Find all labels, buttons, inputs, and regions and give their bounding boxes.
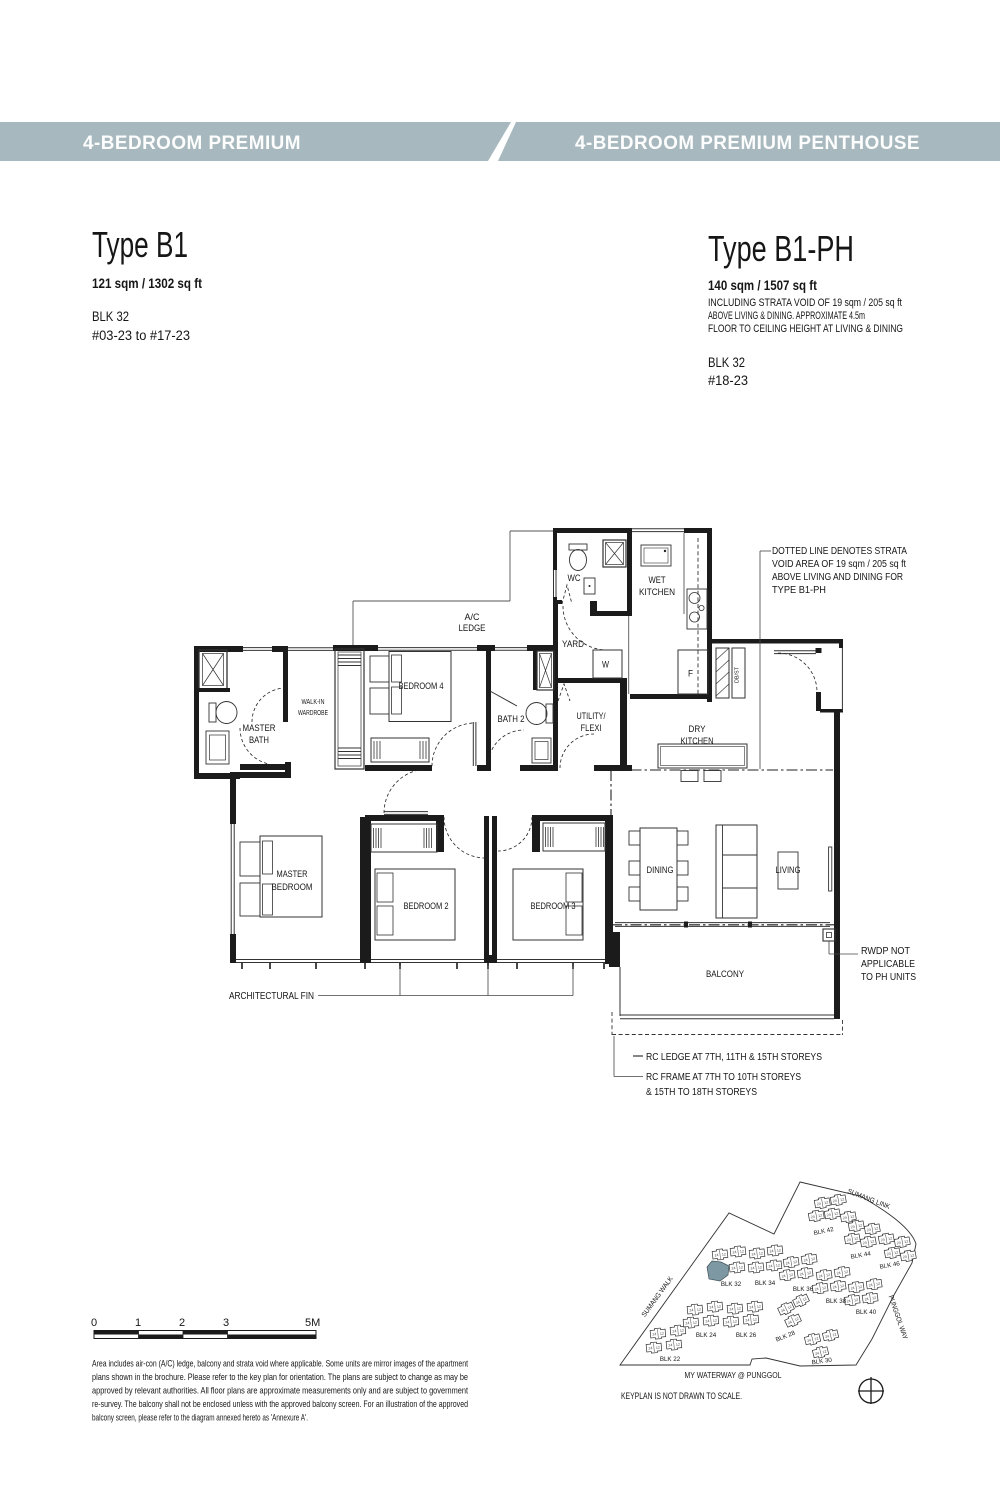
svg-text:BLK 40: BLK 40	[856, 1309, 877, 1316]
svg-text:DOTTED LINE DENOTES STRATA: DOTTED LINE DENOTES STRATA	[772, 546, 907, 557]
svg-text:plans shown in the brochure. P: plans shown in the brochure. Please refe…	[92, 1372, 468, 1382]
svg-text:W: W	[602, 660, 609, 670]
svg-text:#03-23 to #17-23: #03-23 to #17-23	[92, 328, 190, 343]
svg-text:ARCHITECTURAL FIN: ARCHITECTURAL FIN	[229, 991, 314, 1002]
svg-text:BLK 32: BLK 32	[708, 355, 745, 370]
svg-text:UTILITY/: UTILITY/	[577, 711, 606, 721]
svg-text:BEDROOM: BEDROOM	[272, 882, 313, 892]
svg-text:A/C: A/C	[465, 612, 480, 622]
svg-text:KEYPLAN IS NOT DRAWN TO SCALE.: KEYPLAN IS NOT DRAWN TO SCALE.	[621, 1391, 742, 1401]
svg-text:BLK 32: BLK 32	[92, 309, 129, 324]
svg-text:LIVING: LIVING	[776, 865, 801, 875]
svg-text:121 sqm / 1302 sq ft: 121 sqm / 1302 sq ft	[92, 275, 202, 291]
svg-text:WET: WET	[649, 575, 666, 585]
svg-text:RC FRAME AT 7TH TO 10TH STOREY: RC FRAME AT 7TH TO 10TH STOREYS	[646, 1072, 801, 1083]
svg-text:VOID AREA OF 19 sqm / 205 sq f: VOID AREA OF 19 sqm / 205 sq ft	[772, 559, 906, 570]
svg-text:DINING: DINING	[647, 865, 674, 875]
svg-text:Area includes air-con (A/C) le: Area includes air-con (A/C) ledge, balco…	[92, 1359, 468, 1369]
svg-text:LEDGE: LEDGE	[459, 623, 486, 633]
svg-text:DRY: DRY	[689, 724, 706, 734]
svg-text:balcony screen, please refer t: balcony screen, please refer to the diag…	[92, 1413, 308, 1423]
svg-text:WARDROBE: WARDROBE	[298, 708, 328, 717]
svg-text:F: F	[688, 669, 693, 679]
svg-text:approved by relevant authoriti: approved by relevant authorities. All fl…	[92, 1386, 468, 1396]
svg-text:4-BEDROOM PREMIUM: 4-BEDROOM PREMIUM	[83, 132, 301, 154]
svg-text:INCLUDING STRATA VOID OF 19 sq: INCLUDING STRATA VOID OF 19 sqm / 205 sq…	[708, 297, 902, 309]
svg-text:#18-23: #18-23	[708, 373, 748, 388]
svg-text:TO PH UNITS: TO PH UNITS	[861, 972, 916, 983]
svg-text:KITCHEN: KITCHEN	[681, 736, 714, 746]
svg-text:WALK-IN: WALK-IN	[302, 697, 325, 706]
svg-text:FLEXI: FLEXI	[581, 723, 602, 733]
svg-text:ABOVE LIVING & DINING. APPROXI: ABOVE LIVING & DINING. APPROXIMATE 4.5m	[708, 310, 865, 322]
svg-text:DB/ST: DB/ST	[735, 666, 741, 683]
svg-text:FLOOR TO CEILING HEIGHT AT LIV: FLOOR TO CEILING HEIGHT AT LIVING & DINI…	[708, 323, 903, 335]
svg-text:re-survey. The balcony shall n: re-survey. The balcony shall not be encl…	[92, 1399, 468, 1409]
svg-text:BLK 32: BLK 32	[721, 1281, 742, 1288]
svg-text:0: 0	[91, 1317, 97, 1329]
svg-text:BEDROOM 2: BEDROOM 2	[404, 901, 449, 911]
svg-text:BLK 36: BLK 36	[793, 1286, 814, 1293]
svg-text:BALCONY: BALCONY	[706, 969, 744, 979]
svg-text:5M: 5M	[305, 1317, 320, 1329]
svg-text:ABOVE LIVING AND DINING FOR: ABOVE LIVING AND DINING FOR	[772, 572, 903, 583]
svg-text:BLK 38: BLK 38	[826, 1298, 847, 1305]
svg-text:2: 2	[179, 1317, 185, 1329]
svg-text:BLK 24: BLK 24	[696, 1332, 717, 1339]
svg-text:APPLICABLE: APPLICABLE	[861, 959, 915, 970]
svg-text:BLK 34: BLK 34	[755, 1280, 776, 1287]
svg-text:YARD: YARD	[562, 639, 584, 649]
svg-text:KITCHEN: KITCHEN	[639, 587, 675, 597]
svg-text:RWDP NOT: RWDP NOT	[861, 946, 910, 957]
svg-text:BATH 2: BATH 2	[498, 714, 525, 724]
svg-text:140 sqm / 1507 sq ft: 140 sqm / 1507 sq ft	[708, 277, 817, 293]
svg-text:TYPE B1-PH: TYPE B1-PH	[772, 585, 826, 596]
svg-text:4-BEDROOM PREMIUM PENTHOUSE: 4-BEDROOM PREMIUM PENTHOUSE	[575, 132, 920, 154]
svg-text:Type B1: Type B1	[92, 224, 188, 265]
svg-text:RC LEDGE AT 7TH, 11TH & 15TH S: RC LEDGE AT 7TH, 11TH & 15TH STOREYS	[646, 1052, 822, 1063]
svg-text:BLK 26: BLK 26	[736, 1332, 757, 1339]
svg-text:Type B1-PH: Type B1-PH	[708, 228, 854, 269]
svg-text:WC: WC	[568, 573, 581, 583]
svg-text:& 15TH TO 18TH STOREYS: & 15TH TO 18TH STOREYS	[646, 1087, 757, 1098]
svg-text:3: 3	[223, 1317, 229, 1329]
svg-text:1: 1	[135, 1317, 141, 1329]
svg-text:MY WATERWAY @ PUNGGOL: MY WATERWAY @ PUNGGOL	[685, 1370, 782, 1380]
svg-text:BEDROOM 4: BEDROOM 4	[399, 681, 444, 691]
svg-text:MASTER: MASTER	[277, 869, 308, 879]
svg-text:BLK 22: BLK 22	[660, 1356, 681, 1363]
svg-text:BEDROOM 3: BEDROOM 3	[531, 901, 576, 911]
svg-text:BATH: BATH	[249, 735, 269, 745]
svg-text:MASTER: MASTER	[243, 723, 276, 733]
